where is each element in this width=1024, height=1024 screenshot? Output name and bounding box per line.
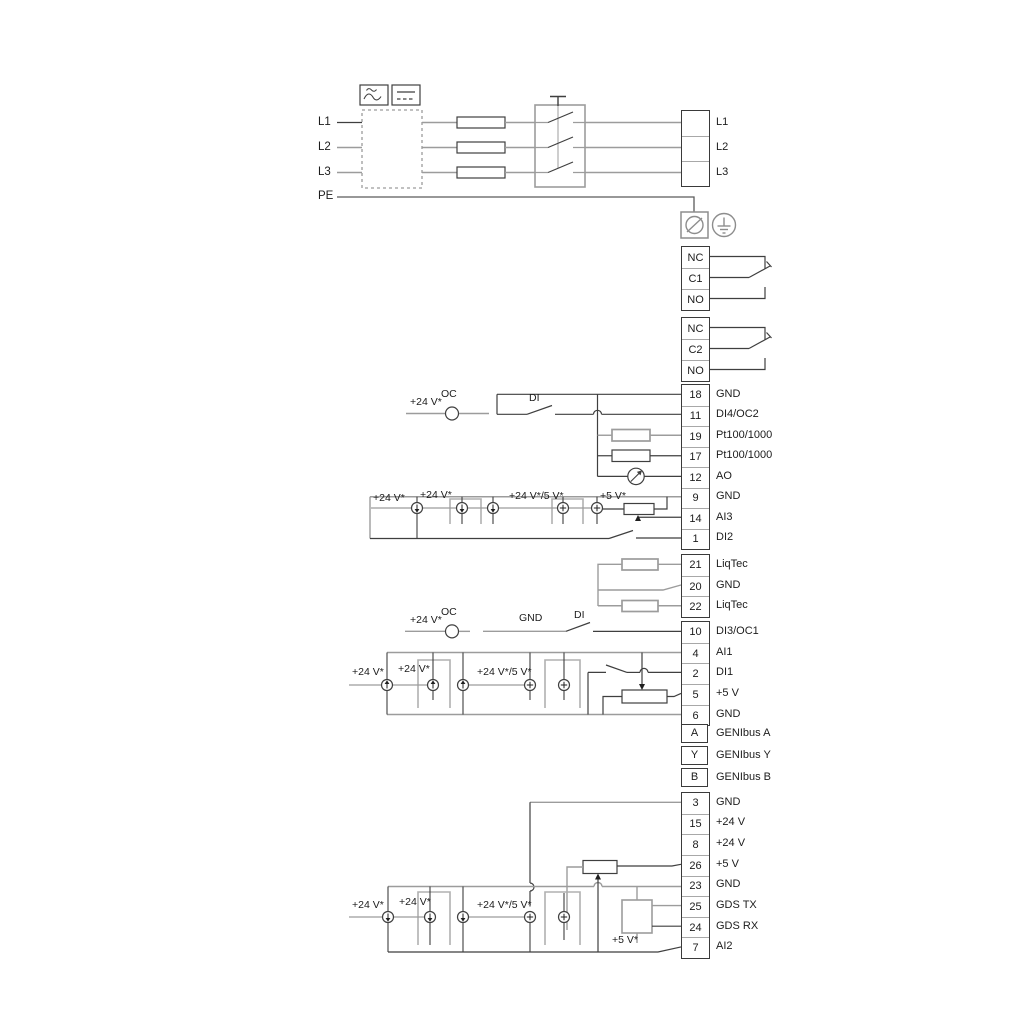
terminal-cell-NC: NC [682, 318, 709, 339]
terminal-label-GDS TX: GDS TX [716, 899, 757, 912]
wiring-diagram-page: NCC1NO NCC2NO 18111917129141 212022 1042… [0, 0, 1024, 1024]
analog-output-meter-icon [628, 468, 644, 484]
terminal-cell-6: 6 [682, 705, 709, 726]
terminal-cell-9: 9 [682, 488, 709, 509]
dc-symbol-icon [392, 85, 420, 105]
liqtec-sensor-wiring [598, 559, 681, 612]
terminal-label-DI3/OC1: DI3/OC1 [716, 625, 759, 638]
terminal-cell-19: 19 [682, 426, 709, 447]
terminal-cell-1: 1 [682, 529, 709, 550]
terminal-label-GND: GND [716, 388, 740, 401]
terminal-label-Pt100/1000: Pt100/1000 [716, 429, 772, 442]
terminal-cell-L1 [682, 111, 709, 136]
open-collector-icon [446, 407, 459, 420]
terminal-label-GND: GND [716, 708, 740, 721]
terminal-label-GND: GND [716, 490, 740, 503]
wire-label: +24 V*/5 V* [477, 666, 532, 678]
terminal-label-+5 V: +5 V [716, 687, 739, 700]
wire-label: +24 V* [373, 492, 405, 504]
terminal-cell-8: 8 [682, 834, 709, 855]
terminal-cell-L2 [682, 136, 709, 161]
terminal-label-DI1: DI1 [716, 666, 733, 679]
terminal-label-+24 V: +24 V [716, 837, 745, 850]
terminal-label-DI4/OC2: DI4/OC2 [716, 408, 759, 421]
pt100-sensor-icon [612, 430, 650, 442]
terminal-cell-4: 4 [682, 643, 709, 664]
wire-label: +24 V* [398, 663, 430, 675]
terminal-block-io-b: 104256 [681, 621, 710, 726]
terminal-label-GDS RX: GDS RX [716, 920, 758, 933]
wire-label: DI [574, 609, 585, 621]
wiring-diagram-canvas [0, 0, 1024, 1024]
terminal-block-genibus: AYB [681, 724, 708, 787]
wire-label: +24 V* [410, 396, 442, 408]
terminal-label-+24 V: +24 V [716, 816, 745, 829]
terminal-cell-NO: NO [682, 360, 709, 381]
terminal-cell-23: 23 [682, 876, 709, 897]
fuse-symbols [457, 117, 505, 178]
terminal-block-relay1: NCC1NO [681, 246, 710, 311]
terminal-block-liqtec: 212022 [681, 554, 710, 618]
wire-label: L1 [318, 116, 331, 129]
terminal-cell-2: 2 [682, 663, 709, 684]
terminal-block-io-c: 3158262325247 [681, 792, 710, 959]
wire-label: +24 V*/5 V* [509, 490, 564, 502]
terminal-cell-20: 20 [682, 576, 709, 597]
ac-symbol-icon [360, 85, 388, 105]
terminal-label-AI1: AI1 [716, 646, 733, 659]
terminal-label-GND: GND [716, 796, 740, 809]
terminal-label-GENIbus B: GENIbus B [716, 771, 771, 784]
terminal-cell-26: 26 [682, 855, 709, 876]
terminal-cell-21: 21 [682, 555, 709, 576]
potentiometer-icon [603, 653, 681, 715]
pe-terminal-symbol [681, 212, 708, 238]
terminal-cell-18: 18 [682, 385, 709, 406]
terminal-label-AI2: AI2 [716, 940, 733, 953]
terminal-label-GENIbus Y: GENIbus Y [716, 749, 771, 762]
terminal-label-L3: L3 [716, 166, 728, 179]
terminal-cell-24: 24 [682, 917, 709, 938]
terminal-cell-A: A [681, 724, 708, 743]
wire-label: GND [519, 612, 542, 624]
relay2-contact-symbol [708, 328, 772, 370]
terminal-cell-25: 25 [682, 896, 709, 917]
terminal-cell-C2: C2 [682, 339, 709, 360]
ai3-sensor-wiring [370, 497, 681, 539]
terminal-cell-22: 22 [682, 596, 709, 617]
terminal-cell-NC: NC [682, 247, 709, 268]
ai1-sensor-wiring [349, 653, 681, 715]
terminal-label-L2: L2 [716, 141, 728, 154]
emc-filter-box [362, 110, 422, 188]
terminal-label-GND: GND [716, 878, 740, 891]
wire-label: L3 [318, 166, 331, 179]
di-switch-icon [566, 623, 590, 632]
terminal-block-io-a: 18111917129141 [681, 384, 710, 550]
terminal-block-relay2: NCC2NO [681, 317, 710, 382]
open-collector-icon [446, 625, 459, 638]
terminal-block-mains-out [681, 110, 710, 187]
di-switch-icon [527, 406, 552, 415]
wire-label: +24 V* [399, 896, 431, 908]
ai2-gds-wiring [349, 802, 681, 952]
wire-label: PE [318, 190, 333, 203]
terminal-cell-11: 11 [682, 406, 709, 427]
wire-label: +24 V* [410, 614, 442, 626]
wire-label: OC [441, 606, 457, 618]
terminal-label-AO: AO [716, 470, 732, 483]
terminal-cell-Y: Y [681, 746, 708, 765]
terminal-label-Pt100/1000: Pt100/1000 [716, 449, 772, 462]
main-switch-symbol [535, 97, 585, 188]
terminal-label-+5 V: +5 V [716, 858, 739, 871]
terminal-label-GENIbus A: GENIbus A [716, 727, 770, 740]
terminal-cell-NO: NO [682, 289, 709, 310]
di3-wiring [405, 623, 681, 638]
terminal-label-DI2: DI2 [716, 531, 733, 544]
di-switch-icon [609, 531, 633, 539]
liqtec-sensor-icon [622, 601, 658, 612]
wire-label: +24 V* [420, 489, 452, 501]
wire-label: +24 V* [352, 666, 384, 678]
pt100-sensor-icon [612, 450, 650, 462]
terminal-cell-7: 7 [682, 937, 709, 958]
earth-ground-icon [713, 214, 736, 237]
wire-label: +5 V* [612, 934, 638, 946]
terminal-cell-12: 12 [682, 467, 709, 488]
liqtec-sensor-icon [622, 559, 658, 570]
terminal-cell-3: 3 [682, 793, 709, 814]
terminal-cell-10: 10 [682, 622, 709, 643]
terminal-cell-17: 17 [682, 447, 709, 468]
terminal-cell-14: 14 [682, 508, 709, 529]
wire-label: OC [441, 388, 457, 400]
mains-input-section [337, 85, 694, 212]
terminal-cell-C1: C1 [682, 268, 709, 289]
wire-label: +24 V* [352, 899, 384, 911]
terminal-label-GND: GND [716, 579, 740, 592]
di4-pt100-ao-wiring [406, 394, 681, 484]
wire-label: +5 V* [600, 490, 626, 502]
wire-label: DI [529, 392, 540, 404]
wire-label: L2 [318, 141, 331, 154]
wire-label: +24 V*/5 V* [477, 899, 532, 911]
terminal-label-L1: L1 [716, 116, 728, 129]
terminal-label-AI3: AI3 [716, 511, 733, 524]
terminal-cell-B: B [681, 768, 708, 787]
di-switch-icon [606, 665, 627, 672]
terminal-label-LiqTec: LiqTec [716, 599, 748, 612]
terminal-label-LiqTec: LiqTec [716, 558, 748, 571]
terminal-cell-L3 [682, 161, 709, 186]
terminal-cell-5: 5 [682, 684, 709, 705]
relay1-contact-symbol [708, 257, 772, 299]
terminal-cell-15: 15 [682, 814, 709, 835]
